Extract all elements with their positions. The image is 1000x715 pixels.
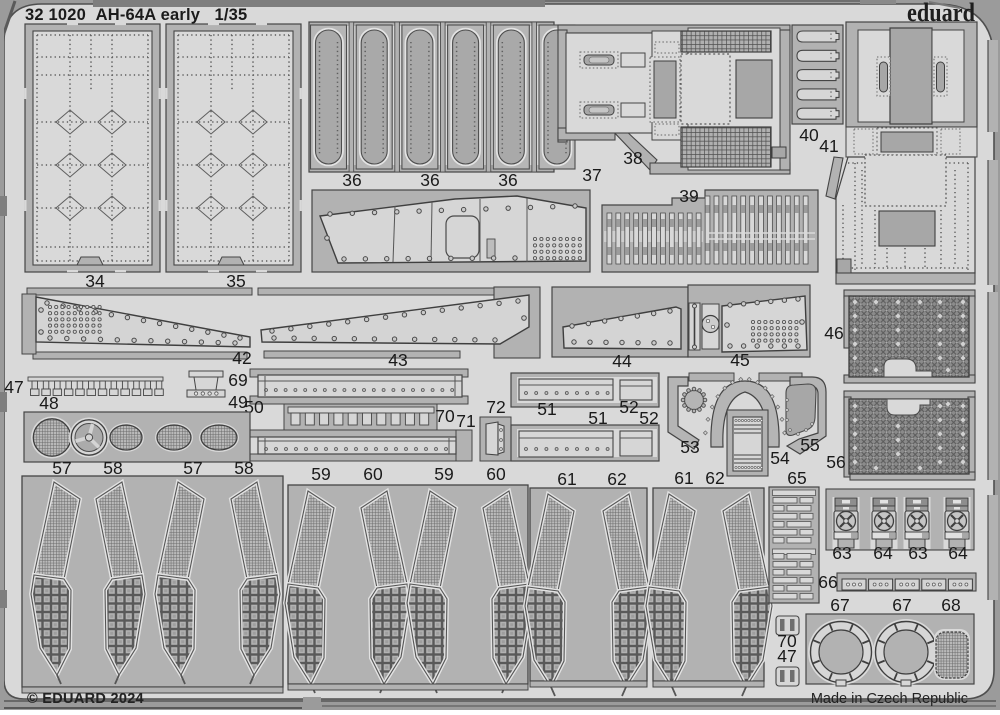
svg-text:32 1020 AH-64A early 1/35: 32 1020 AH-64A early 1/35: [25, 6, 247, 24]
svg-text:47: 47: [4, 377, 23, 397]
svg-text:66: 66: [818, 572, 837, 592]
svg-text:57: 57: [52, 458, 71, 478]
svg-text:52: 52: [619, 397, 638, 417]
svg-text:© EDUARD 2024: © EDUARD 2024: [27, 691, 144, 707]
svg-text:48: 48: [39, 393, 58, 413]
svg-text:47: 47: [777, 646, 796, 666]
svg-text:56: 56: [826, 452, 845, 472]
svg-text:52: 52: [639, 408, 658, 428]
svg-text:62: 62: [607, 469, 626, 489]
svg-text:41: 41: [819, 136, 838, 156]
svg-text:64: 64: [948, 543, 968, 563]
svg-text:63: 63: [908, 543, 927, 563]
svg-text:37: 37: [582, 165, 601, 185]
svg-text:58: 58: [103, 458, 122, 478]
svg-text:43: 43: [388, 350, 407, 370]
svg-text:60: 60: [363, 464, 383, 484]
svg-text:67: 67: [830, 595, 849, 615]
svg-text:44: 44: [612, 351, 632, 371]
svg-text:36: 36: [342, 170, 361, 190]
svg-text:68: 68: [941, 595, 960, 615]
svg-text:59: 59: [434, 464, 453, 484]
svg-text:63: 63: [832, 543, 851, 563]
svg-text:67: 67: [892, 595, 911, 615]
svg-text:64: 64: [873, 543, 893, 563]
svg-text:69: 69: [228, 370, 247, 390]
svg-text:57: 57: [183, 458, 202, 478]
svg-text:59: 59: [311, 464, 330, 484]
svg-text:65: 65: [787, 468, 806, 488]
svg-text:53: 53: [680, 437, 699, 457]
svg-text:71: 71: [456, 411, 475, 431]
svg-text:36: 36: [498, 170, 517, 190]
svg-text:54: 54: [770, 448, 790, 468]
svg-text:72: 72: [486, 397, 505, 417]
svg-text:40: 40: [799, 125, 819, 145]
svg-text:58: 58: [234, 458, 253, 478]
svg-text:55: 55: [800, 435, 819, 455]
svg-text:51: 51: [588, 408, 607, 428]
svg-text:46: 46: [824, 323, 843, 343]
svg-text:42: 42: [232, 348, 251, 368]
svg-text:60: 60: [486, 464, 506, 484]
svg-text:45: 45: [730, 350, 749, 370]
svg-text:61: 61: [674, 468, 693, 488]
svg-text:61: 61: [557, 469, 576, 489]
svg-text:38: 38: [623, 148, 642, 168]
svg-text:70: 70: [435, 406, 455, 426]
svg-text:51: 51: [537, 399, 556, 419]
svg-text:Made in Czech Republic: Made in Czech Republic: [811, 691, 968, 707]
svg-text:62: 62: [705, 468, 724, 488]
svg-text:36: 36: [420, 170, 439, 190]
svg-text:39: 39: [679, 186, 698, 206]
